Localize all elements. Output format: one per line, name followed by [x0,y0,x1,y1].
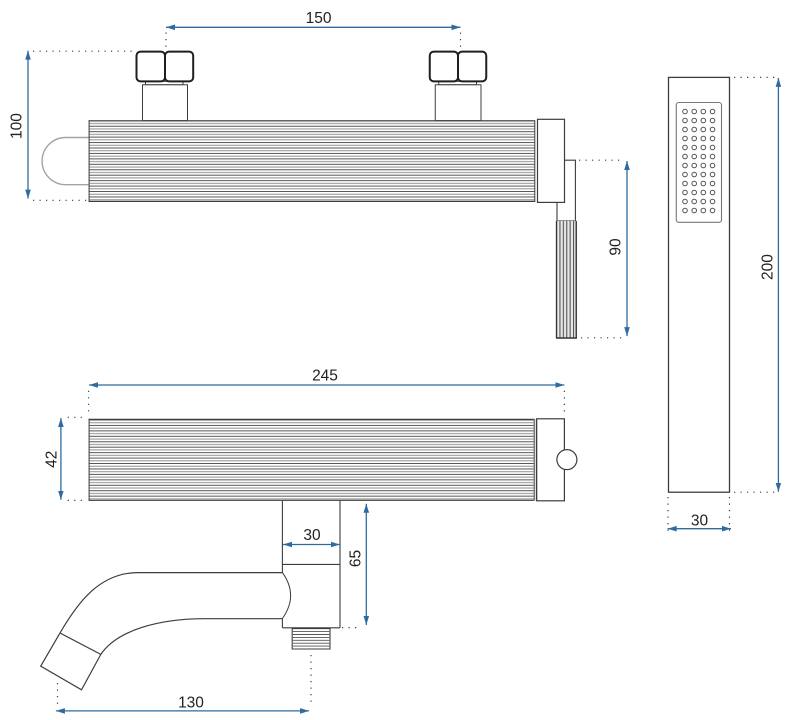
svg-text:65: 65 [348,550,365,567]
svg-text:130: 130 [178,695,204,712]
svg-text:30: 30 [303,527,321,544]
svg-text:100: 100 [8,113,25,139]
svg-text:42: 42 [43,451,60,468]
svg-text:150: 150 [306,10,332,27]
svg-text:30: 30 [691,512,709,529]
svg-text:200: 200 [760,254,777,280]
svg-text:90: 90 [607,238,624,256]
svg-text:245: 245 [312,368,338,385]
